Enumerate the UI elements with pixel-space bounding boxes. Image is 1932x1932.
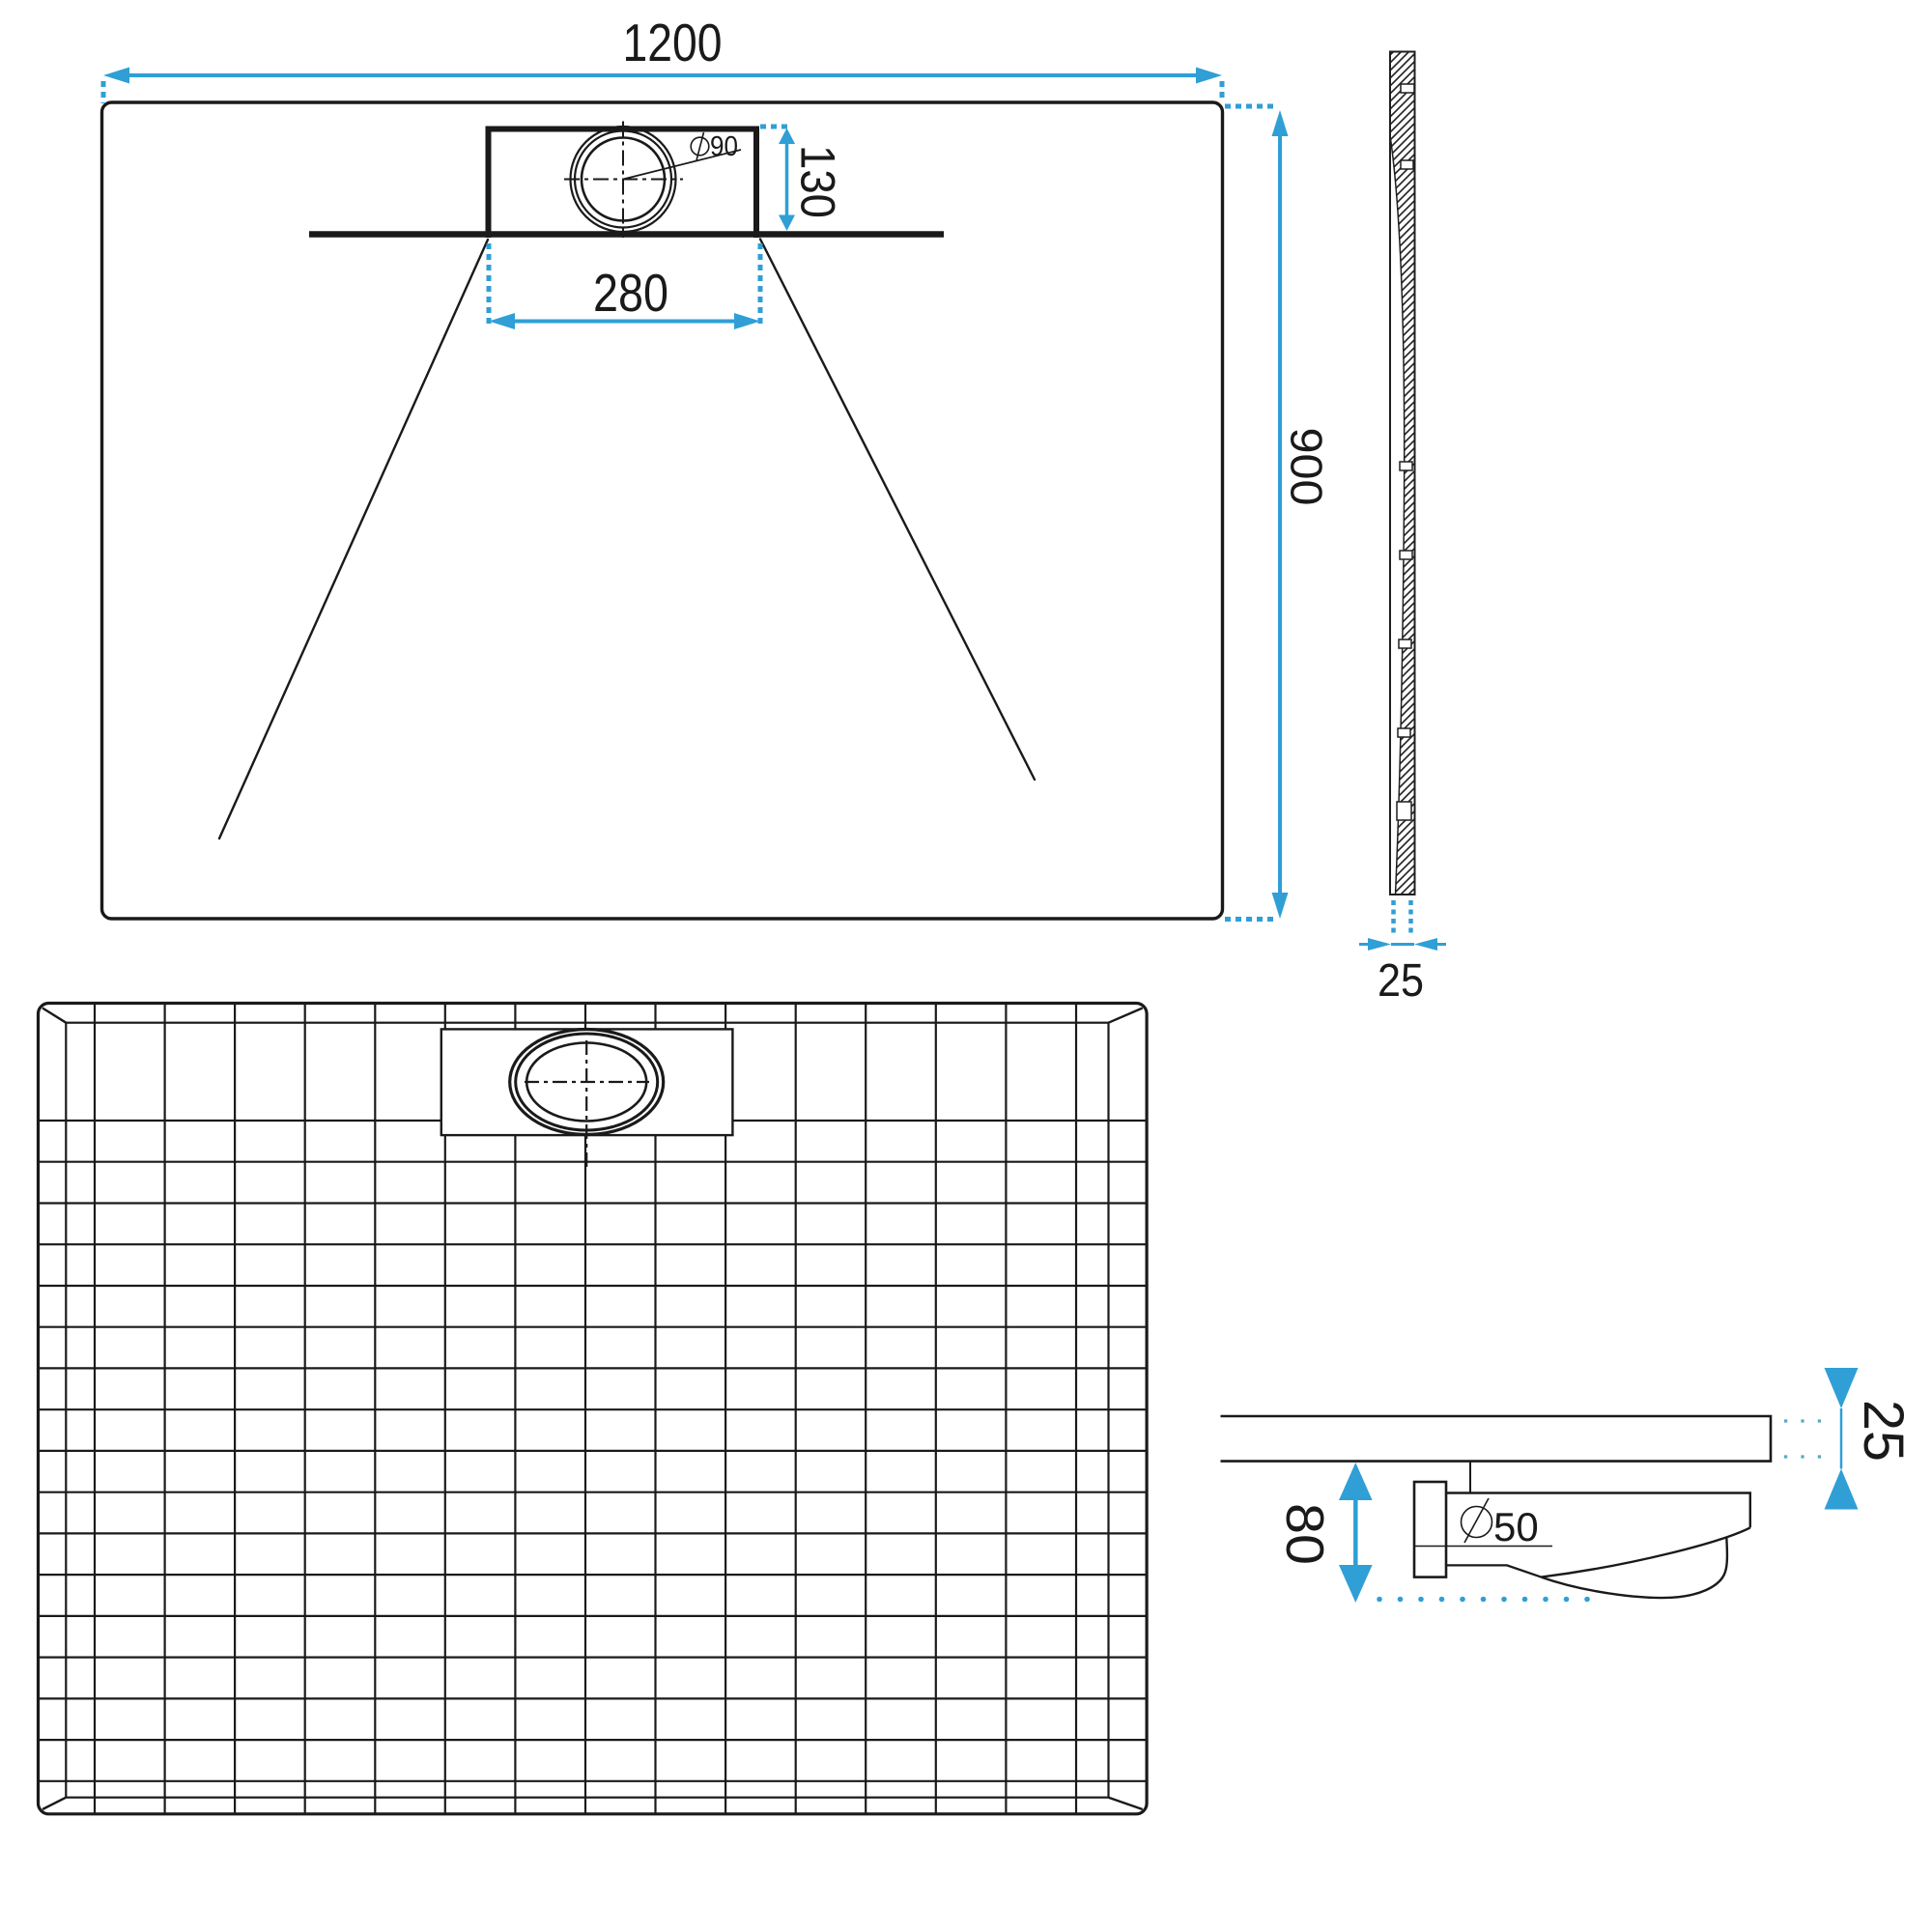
svg-text:130: 130	[791, 145, 845, 218]
svg-text:25: 25	[1378, 955, 1424, 1007]
svg-text:900: 900	[1282, 428, 1332, 506]
svg-text:80: 80	[1275, 1503, 1335, 1565]
svg-text:50: 50	[1493, 1504, 1539, 1549]
svg-text:25: 25	[1852, 1400, 1915, 1462]
svg-text:280: 280	[593, 263, 668, 323]
svg-text:90: 90	[710, 131, 738, 162]
svg-text:1200: 1200	[623, 13, 723, 72]
